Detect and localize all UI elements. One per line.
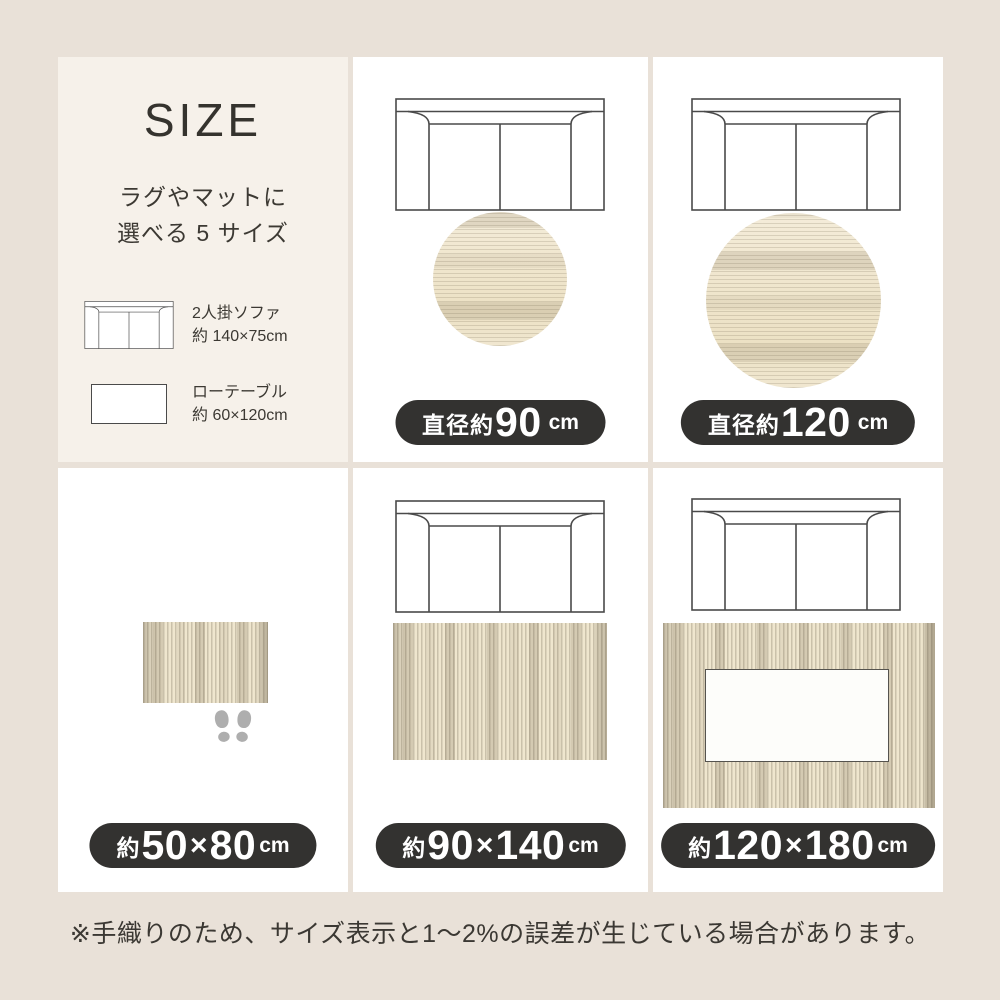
sofa-icon xyxy=(395,98,605,211)
multiply-sign: × xyxy=(476,829,494,863)
multiply-sign: × xyxy=(785,829,803,863)
size-unit: cm xyxy=(568,834,598,858)
panel-round-90: 直径約90cm xyxy=(353,57,648,462)
multiply-sign: × xyxy=(190,829,208,863)
subtitle-line-2: 選べる 5 サイズ xyxy=(58,215,348,251)
panel-round-120: 直径約120cm xyxy=(653,57,943,462)
size-prefix: 直径約 xyxy=(708,406,780,440)
sofa-icon xyxy=(395,500,605,613)
legend-low-table: ローテーブル 約 60×120cm xyxy=(82,381,332,427)
size-prefix: 直径約 xyxy=(422,406,494,440)
size-value: 120 xyxy=(781,399,851,446)
panel-mat-50x80: 約50×80cm xyxy=(58,468,348,892)
legend-sofa: 2人掛ソファ 約 140×75cm xyxy=(82,301,332,349)
subtitle: ラグやマットに 選べる 5 サイズ xyxy=(58,179,348,251)
size-unit: cm xyxy=(878,834,908,858)
footprints-icon xyxy=(211,708,255,748)
intro-panel: SIZE ラグやマットに 選べる 5 サイズ 2人掛ソファ 約 140×75cm… xyxy=(58,57,348,462)
size-badge-90x140: 約90×140cm xyxy=(375,823,625,868)
size-unit: cm xyxy=(858,411,888,435)
subtitle-line-1: ラグやマットに xyxy=(58,179,348,215)
size-guide-infographic: SIZE ラグやマットに 選べる 5 サイズ 2人掛ソファ 約 140×75cm… xyxy=(0,0,1000,1000)
sofa-icon xyxy=(84,301,174,349)
rug-90x140-image xyxy=(393,623,607,760)
round-rug-120-image xyxy=(706,213,881,388)
legend-sofa-name: 2人掛ソファ xyxy=(192,302,288,325)
size-badge-120x180: 約120×180cm xyxy=(661,823,935,868)
size-unit: cm xyxy=(259,834,289,858)
size-value: 120 xyxy=(713,822,783,869)
sofa-icon xyxy=(691,98,901,211)
size-value: 90 xyxy=(495,399,542,446)
low-table-icon xyxy=(91,384,167,424)
size-prefix: 約 xyxy=(688,829,712,863)
panel-rug-90x140: 約90×140cm xyxy=(353,468,648,892)
legend-table-size: 約 60×120cm xyxy=(192,404,288,427)
legend-table-name: ローテーブル xyxy=(192,381,288,404)
panel-rug-120x180: 約120×180cm xyxy=(653,468,943,892)
size-prefix: 約 xyxy=(116,829,140,863)
legend-sofa-size: 約 140×75cm xyxy=(192,325,288,348)
size-prefix: 約 xyxy=(402,829,426,863)
size-badge-round-120: 直径約120cm xyxy=(681,400,915,445)
low-table-outline xyxy=(705,669,889,762)
size-badge-50x80: 約50×80cm xyxy=(89,823,316,868)
sofa-icon xyxy=(691,498,901,611)
size-unit: cm xyxy=(549,411,579,435)
size-value: 50 xyxy=(141,822,188,869)
round-rug-90-image xyxy=(433,212,567,346)
footnote: ※手織りのため、サイズ表示と1～2%の誤差が生じている場合があります。 xyxy=(0,916,1000,952)
size-value: 90 xyxy=(427,822,474,869)
page-title: SIZE xyxy=(58,93,348,147)
mat-50x80-image xyxy=(143,622,268,703)
size-badge-round-90: 直径約90cm xyxy=(395,400,606,445)
